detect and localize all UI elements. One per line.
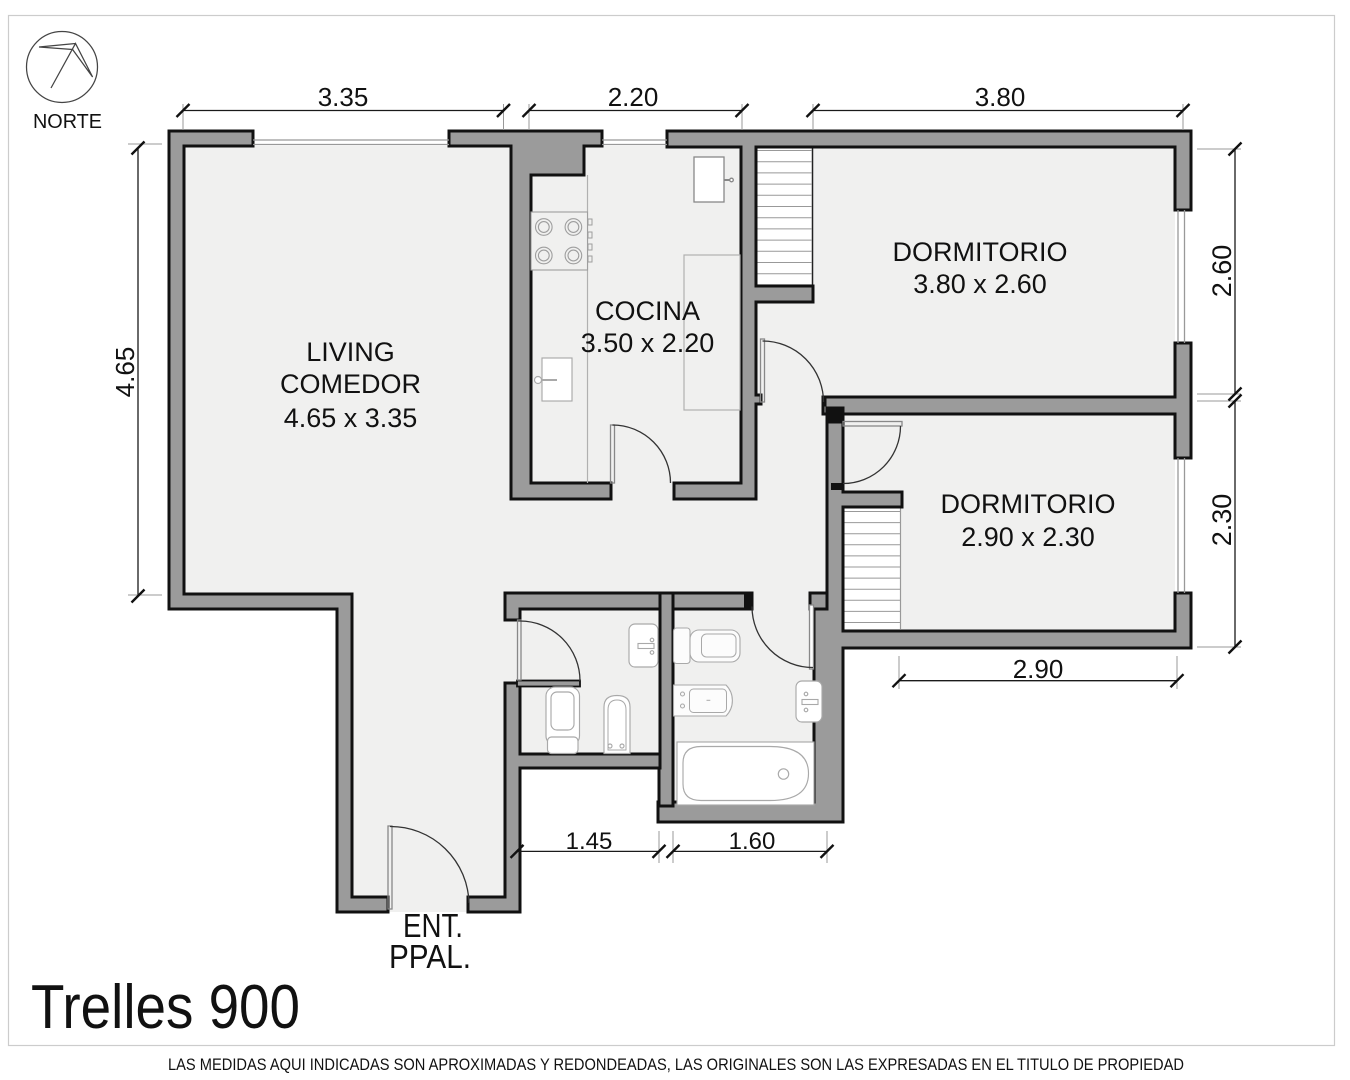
svg-text:2.60: 2.60 (1207, 245, 1237, 298)
svg-text:3.80: 3.80 (975, 82, 1026, 112)
svg-text:LIVING: LIVING (306, 337, 395, 367)
svg-text:3.80 x 2.60: 3.80 x 2.60 (913, 269, 1047, 299)
svg-text:1.45: 1.45 (566, 828, 613, 855)
svg-text:2.30: 2.30 (1207, 494, 1237, 547)
svg-text:DORMITORIO: DORMITORIO (941, 489, 1116, 519)
svg-text:2.20: 2.20 (608, 82, 659, 112)
svg-text:4.65 x 3.35: 4.65 x 3.35 (284, 403, 418, 433)
svg-text:DORMITORIO: DORMITORIO (893, 237, 1068, 267)
svg-text:2.90 x 2.30: 2.90 x 2.30 (961, 522, 1095, 552)
svg-text:COMEDOR: COMEDOR (280, 369, 421, 399)
svg-text:NORTE: NORTE (33, 111, 102, 133)
svg-text:PPAL.: PPAL. (389, 938, 471, 975)
svg-text:3.35: 3.35 (318, 82, 369, 112)
svg-text:Trelles 900: Trelles 900 (31, 973, 300, 1042)
svg-text:4.65: 4.65 (110, 347, 140, 398)
svg-text:COCINA: COCINA (595, 296, 700, 326)
svg-text:LAS MEDIDAS AQUI INDICADAS SON: LAS MEDIDAS AQUI INDICADAS SON APROXIMAD… (168, 1056, 1184, 1074)
svg-text:2.90: 2.90 (1013, 654, 1064, 684)
svg-text:3.50 x 2.20: 3.50 x 2.20 (581, 328, 715, 358)
svg-text:1.60: 1.60 (729, 828, 776, 855)
